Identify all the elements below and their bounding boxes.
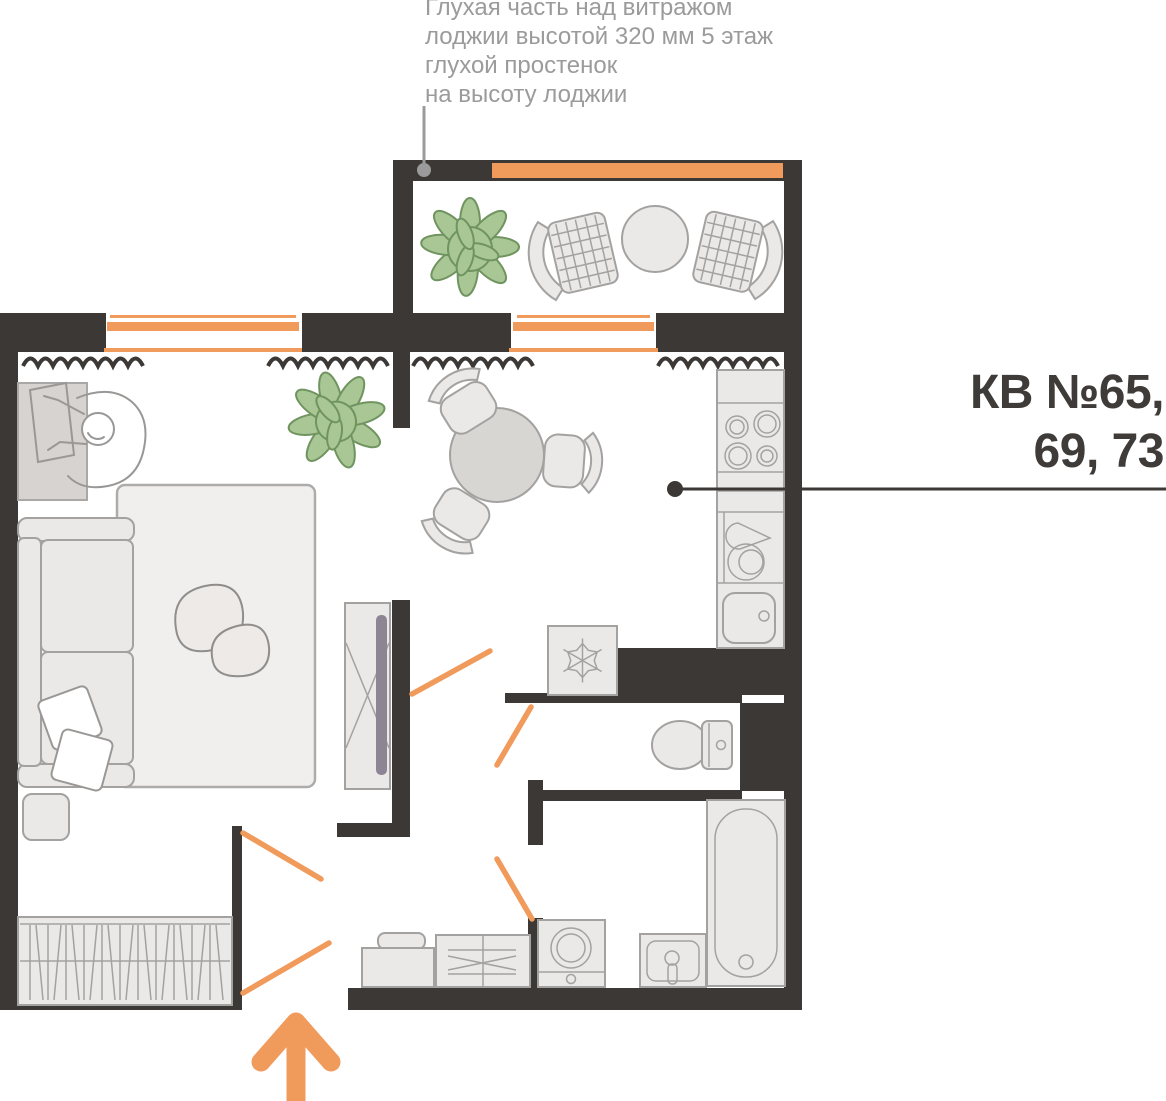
floor-plan-canvas: Глухая часть над витражом лоджии высотой… [0, 0, 1166, 1101]
curtain-kitchen-right [658, 359, 778, 367]
apartment-label: КВ №65, 69, 73 [970, 363, 1164, 481]
loggia-annotation: Глухая часть над витражом лоджии высотой… [425, 0, 773, 109]
door-swing-kitchen [412, 651, 490, 694]
hall-bench [362, 933, 434, 987]
tv-console [345, 603, 390, 789]
washing-machine [538, 920, 605, 987]
bathroom [538, 800, 785, 987]
wall-partition-upper [393, 313, 410, 428]
wall-exterior-right [784, 160, 802, 1010]
floor-plan [0, 0, 1166, 1101]
dining-chair [542, 430, 604, 494]
nightstand [23, 794, 69, 840]
curtain-living-right [268, 359, 388, 367]
kitchen-counter [717, 370, 784, 648]
annotation-line: глухой простенок [425, 51, 773, 80]
wall-wc-top [505, 693, 742, 703]
curtain-kitchen-left [413, 359, 533, 367]
entrance-arrow-icon [261, 1022, 331, 1100]
living-room [18, 353, 404, 1005]
tv-screen [376, 615, 387, 775]
wall-hall-partition [232, 826, 242, 1005]
loggia-plant [420, 198, 519, 297]
fridge [548, 626, 617, 695]
wall-kitchen-hall [615, 648, 785, 695]
loggia-glazing [492, 163, 783, 178]
loggia [420, 198, 790, 304]
toilet [652, 721, 732, 769]
washbasin [640, 934, 706, 987]
door-swing-wc [497, 707, 531, 765]
living-room-window [104, 315, 302, 352]
wall-top-left [0, 313, 106, 352]
shoe-cabinet [436, 935, 530, 987]
wall-tv-partition [392, 600, 410, 837]
wall-top-right [656, 313, 784, 352]
door-swing-bathroom [497, 859, 532, 919]
door-swing-entrance [243, 943, 329, 993]
wall-tv-partition-foot [337, 823, 410, 837]
annotation-leader-dot [417, 163, 431, 177]
loggia-chair-right [691, 206, 790, 303]
curtain-living-left [23, 359, 143, 367]
living-room-plant [269, 353, 404, 488]
wall-exterior-left [0, 313, 18, 1010]
kitchen-sink [723, 593, 775, 643]
kitchen [416, 360, 784, 695]
wc [652, 721, 732, 769]
wall-loggia-left [393, 160, 413, 313]
wall-bath-stub-top [528, 780, 543, 845]
loggia-chair-left [521, 207, 620, 304]
label-leader-dot [667, 481, 683, 497]
wall-bottom-right [348, 988, 802, 1010]
annotation-line: лоджии высотой 320 мм 5 этаж [425, 22, 773, 51]
kitchen-window [509, 315, 658, 352]
annotation-line: Глухая часть над витражом [425, 0, 773, 22]
apartment-label-line: 69, 73 [970, 422, 1164, 481]
door-swing-living-room [243, 833, 321, 879]
bathtub [707, 800, 785, 986]
annotation-line: на высоту лоджии [425, 80, 773, 109]
hallway [362, 933, 530, 987]
loggia-table [622, 206, 688, 272]
wall-wc-shaft [740, 703, 784, 791]
sofa [18, 518, 134, 792]
apartment-label-line: КВ №65, [970, 363, 1164, 422]
wardrobe [18, 917, 232, 1005]
